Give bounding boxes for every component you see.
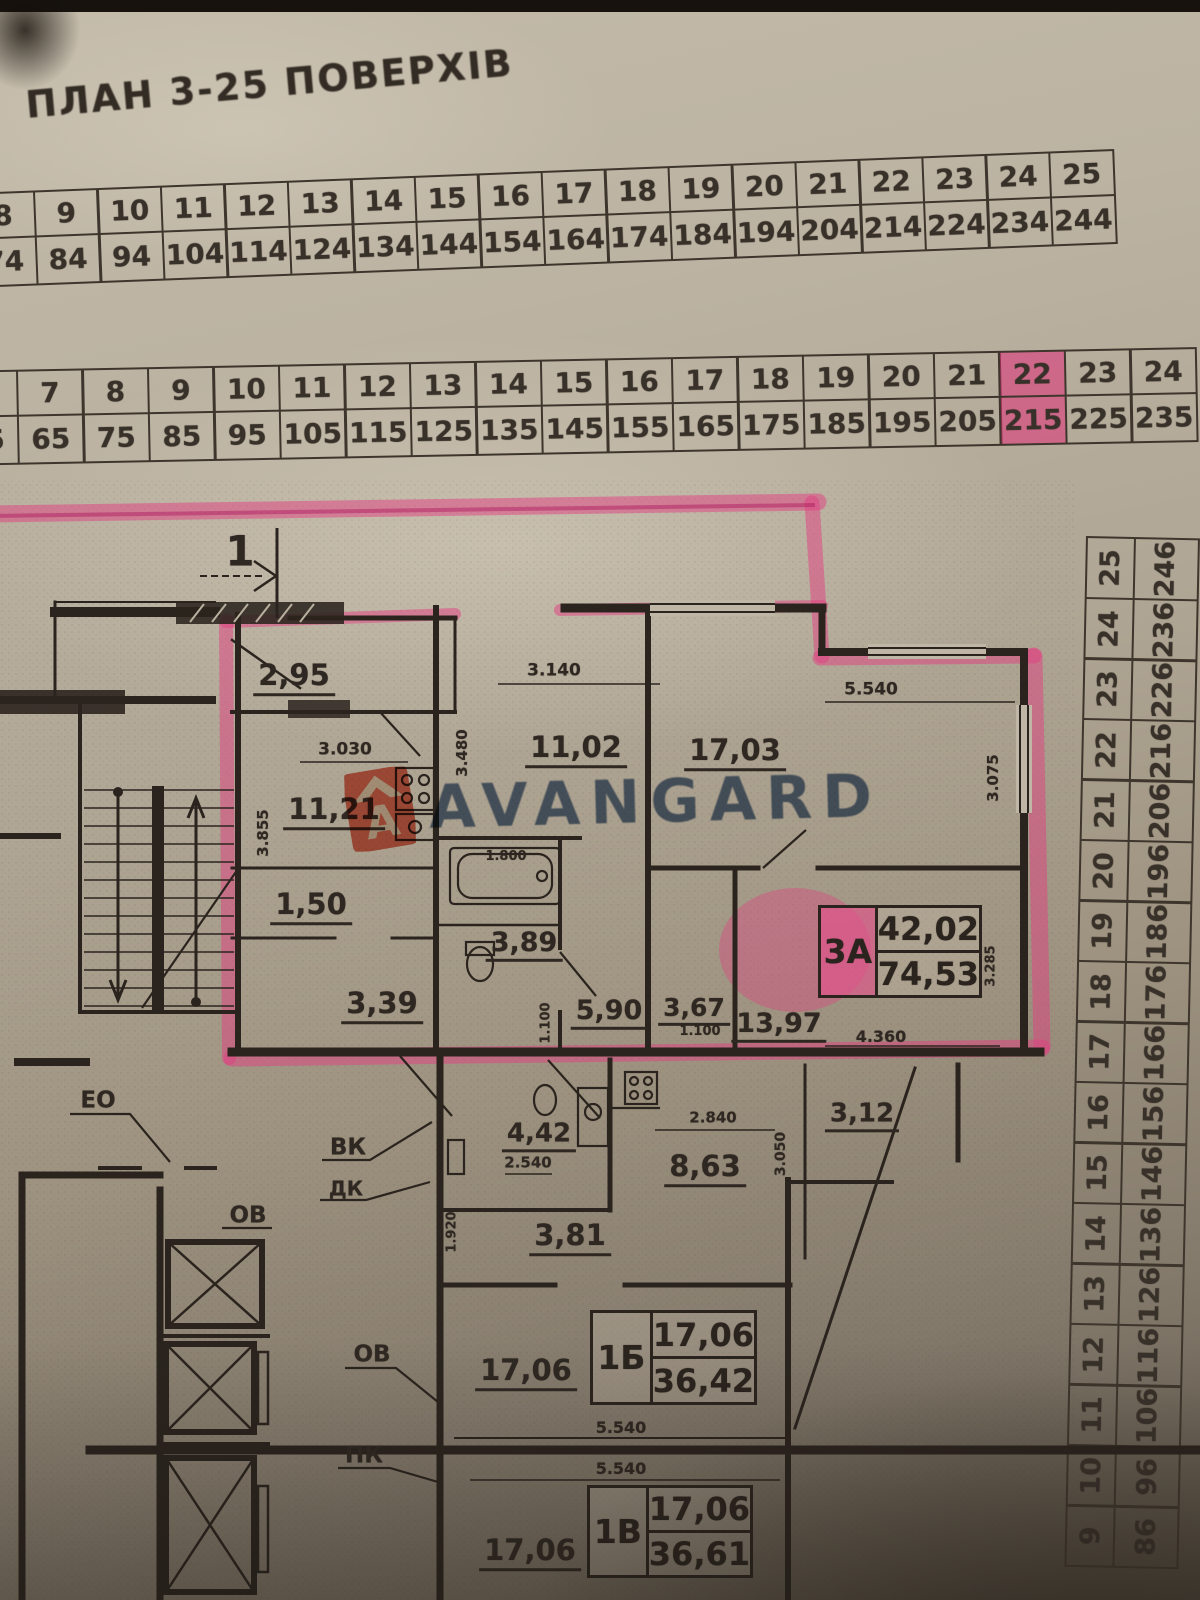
dimension-label: 5.540 — [844, 680, 898, 700]
apartment-code: 1Б — [593, 1313, 653, 1402]
dimension-label: 2.540 — [504, 1154, 551, 1172]
scanned-floor-plan-page: ПЛАН 3-25 ПОВЕРХІВ 8 74 9 84 10 94 11 10… — [0, 0, 1200, 1600]
room-area-label: 17,06 — [479, 1533, 581, 1571]
hatched-wall-band — [0, 690, 125, 714]
apartment-info-box: 3А 42,02 74,53 — [818, 905, 982, 998]
watermark-text: AVANGARD — [428, 761, 883, 843]
apartment-total-area: 36,42 — [653, 1359, 754, 1402]
room-area-label: 4,42 — [502, 1118, 576, 1152]
room-area-label: 13,97 — [731, 1008, 826, 1043]
room-area-label: 3,39 — [341, 986, 423, 1024]
room-area-label: 2,95 — [253, 658, 335, 696]
section-marker-number: 1 — [225, 527, 254, 576]
dimension-label: 3.285 — [984, 945, 999, 986]
dimension-label: 3.030 — [318, 740, 372, 760]
dimension-label: 3.140 — [527, 661, 581, 681]
utility-label-pk: ПК — [345, 1442, 383, 1468]
apartment-total-area: 74,53 — [878, 953, 979, 995]
dimension-label: 5.540 — [596, 1418, 647, 1437]
apartment-total-area: 36,61 — [649, 1533, 750, 1575]
apartment-living-area: 42,02 — [878, 908, 979, 953]
room-area-label: 3,81 — [529, 1218, 611, 1256]
utility-label-dk: ДК — [329, 1177, 363, 1201]
dimension-label: 2.840 — [689, 1109, 736, 1127]
dimension-label: 3.075 — [984, 754, 1002, 801]
balcony-rail — [176, 602, 344, 624]
dimension-label: 3.050 — [773, 1132, 789, 1176]
apartment-info-box: 1Б 17,06 36,42 — [590, 1310, 757, 1405]
dimension-label: 1.100 — [679, 1024, 720, 1039]
dimension-label: 1.920 — [445, 1211, 460, 1252]
apartment-code: 3А — [821, 908, 878, 995]
utility-label-vk: ВК — [330, 1134, 366, 1160]
dimension-label: 3.855 — [254, 809, 272, 856]
dimension-label: 1.100 — [539, 1002, 554, 1043]
avangard-logo-icon: A — [344, 766, 416, 852]
utility-label-ov: ОВ — [229, 1202, 266, 1228]
room-area-label: 8,63 — [664, 1149, 746, 1187]
room-area-label: 3,89 — [486, 927, 563, 962]
apartment-info-box: 1В 17,06 36,61 — [587, 1485, 753, 1578]
dimension-label: 1.800 — [485, 849, 526, 864]
avangard-watermark: A AVANGARD — [344, 753, 883, 853]
dimension-label: 5.540 — [596, 1459, 647, 1478]
apartment-living-area: 17,06 — [653, 1313, 754, 1359]
room-area-label: 1,50 — [270, 887, 352, 925]
apartment-code: 1В — [590, 1488, 649, 1575]
utility-label-eo: ЕО — [80, 1087, 115, 1113]
utility-label-ov: ОВ — [353, 1341, 390, 1367]
room-area-label: 17,06 — [475, 1353, 577, 1391]
room-area-label: 5,90 — [571, 995, 648, 1030]
radiator — [288, 700, 350, 718]
room-area-label: 3,67 — [658, 993, 730, 1026]
dimension-label: 4.360 — [856, 1027, 907, 1046]
room-area-label: 3,12 — [825, 1098, 899, 1132]
apartment-living-area: 17,06 — [649, 1488, 750, 1533]
